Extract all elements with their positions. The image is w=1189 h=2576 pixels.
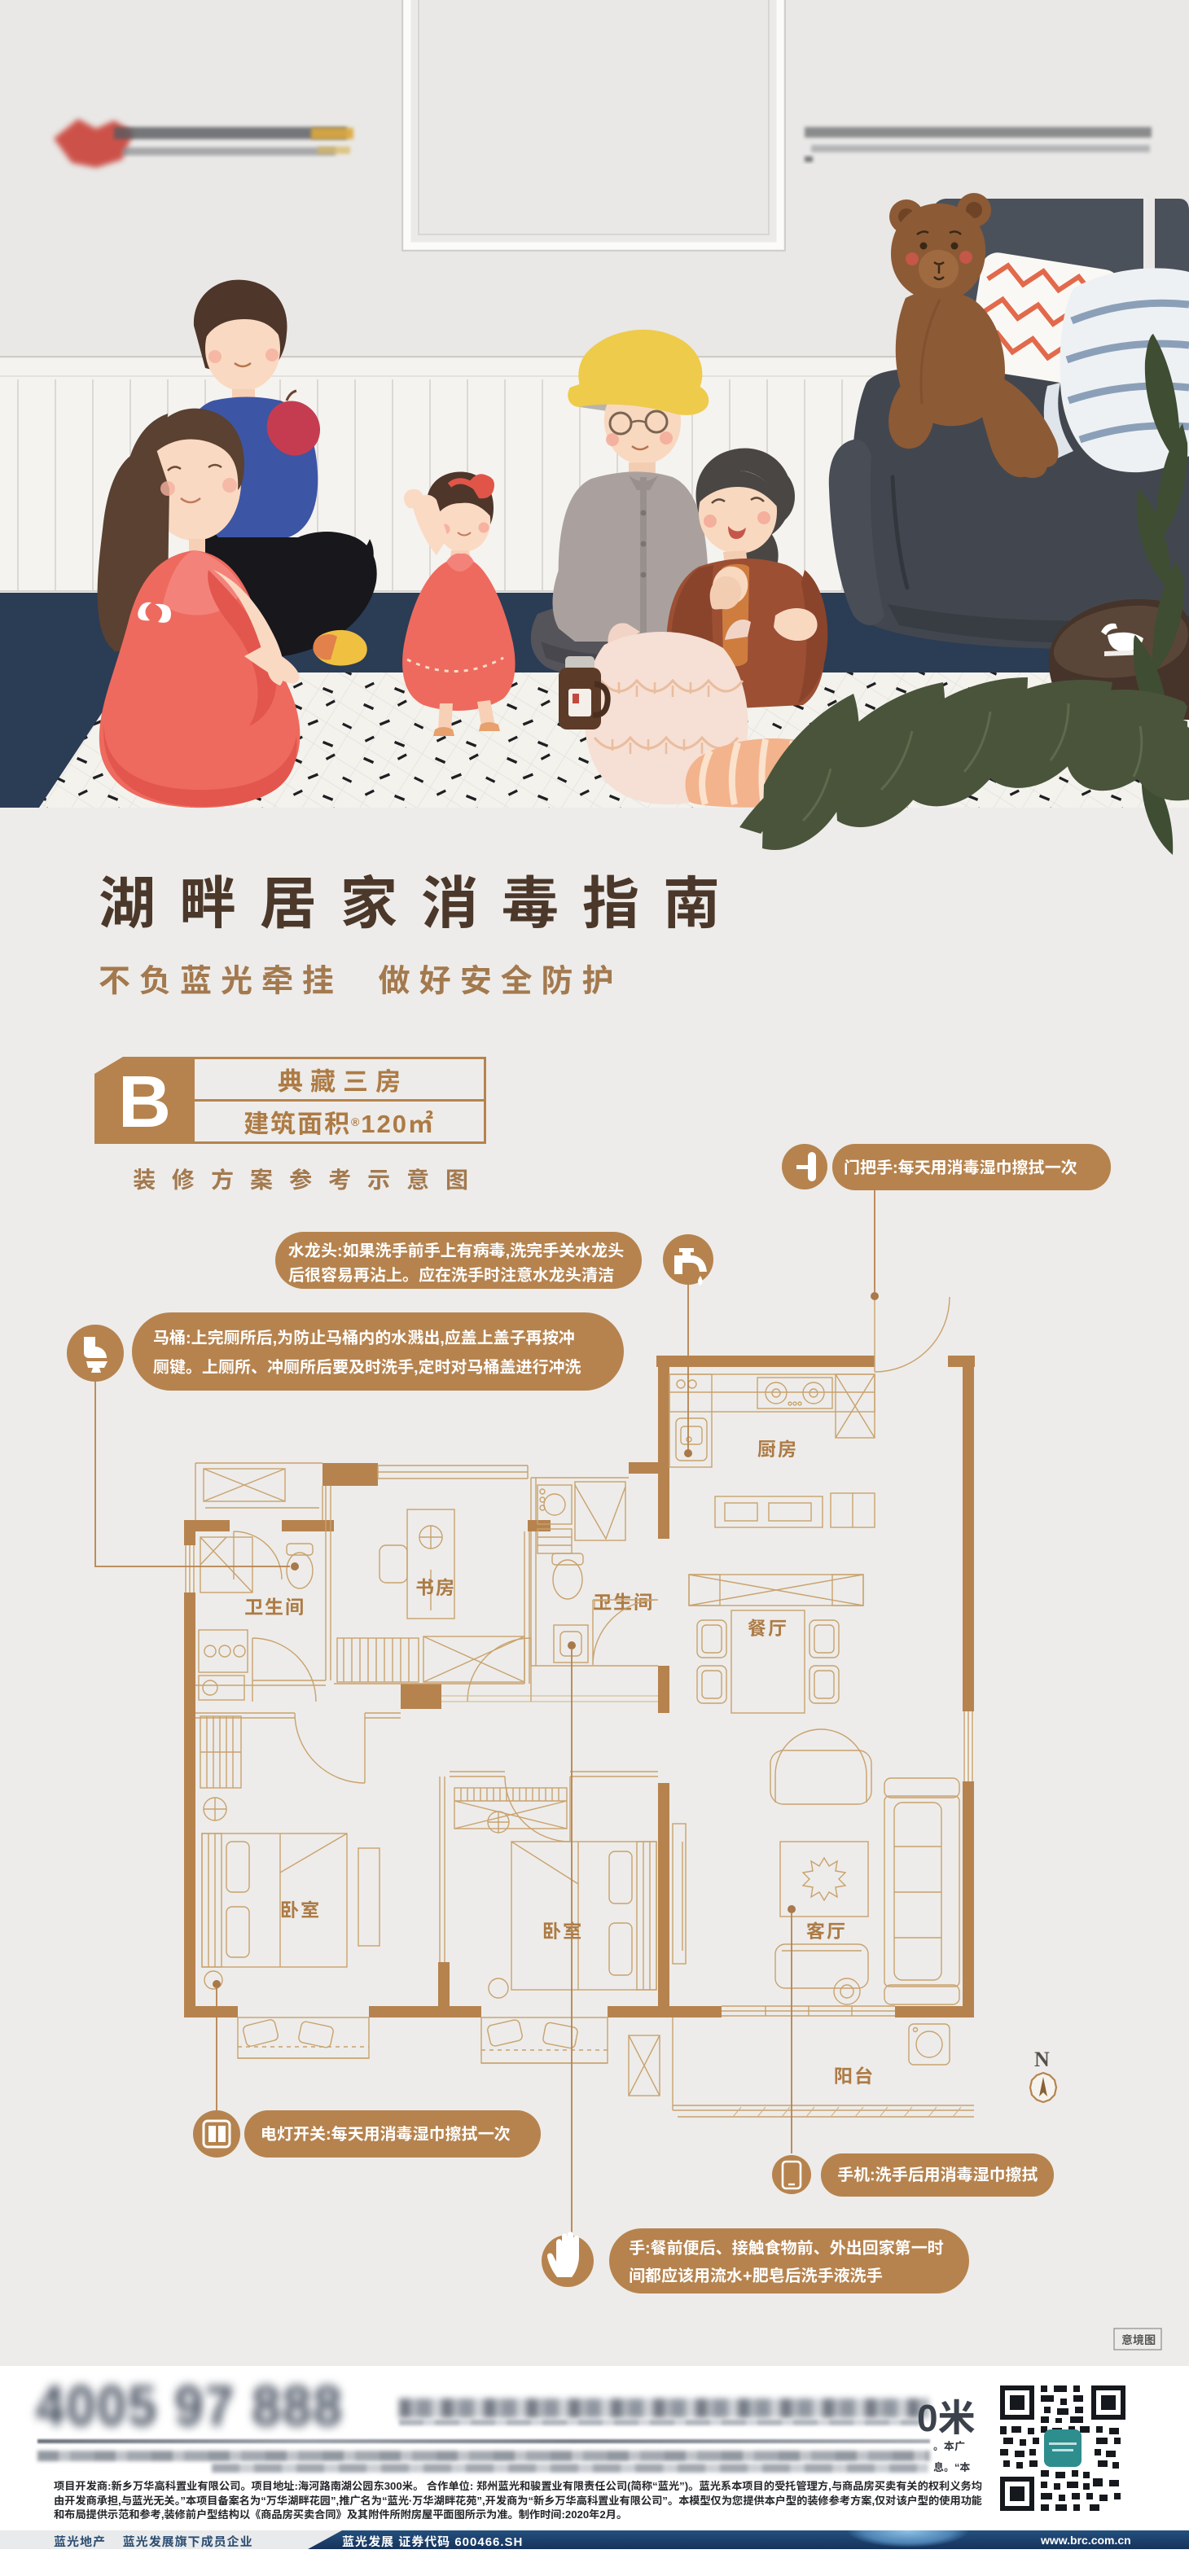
svg-text:卫生间: 卫生间	[244, 1597, 305, 1618]
svg-text:卧室: 卧室	[280, 1899, 321, 1921]
svg-text:N: N	[1034, 2048, 1050, 2071]
svg-text:水龙头:如果洗手前手上有病毒,洗完手关水龙头: 水龙头:如果洗手前手上有病毒,洗完手关水龙头	[288, 1242, 624, 1260]
svg-text:马桶:上完厕所后,为防止马桶内的水溅出,应盖上盖子再按冲: 马桶:上完厕所后,为防止马桶内的水溅出,应盖上盖子再按冲	[153, 1329, 575, 1347]
svg-text:客厅: 客厅	[806, 1921, 847, 1942]
svg-text:书房: 书房	[415, 1577, 456, 1598]
svg-text:手:餐前便后、接触食物前、外出回家第一时: 手:餐前便后、接触食物前、外出回家第一时	[629, 2239, 944, 2258]
svg-text:门把手:每天用消毒湿巾擦拭一次: 门把手:每天用消毒湿巾擦拭一次	[844, 1159, 1077, 1177]
svg-text:阳台: 阳台	[834, 2066, 875, 2087]
svg-text:手机:洗手后用消毒湿巾擦拭: 手机:洗手后用消毒湿巾擦拭	[837, 2166, 1038, 2184]
svg-text:意境图: 意境图	[1121, 2333, 1156, 2346]
svg-text:餐厅: 餐厅	[748, 1618, 788, 1639]
svg-text:厨房: 厨房	[757, 1439, 798, 1460]
svg-text:电灯开关:每天用消毒湿巾擦拭一次: 电灯开关:每天用消毒湿巾擦拭一次	[261, 2125, 511, 2144]
svg-text:卧室: 卧室	[542, 1921, 583, 1942]
svg-text:厕键。上厕所、冲厕所后要及时洗手,定时对马桶盖进行冲洗: 厕键。上厕所、冲厕所后要及时洗手,定时对马桶盖进行冲洗	[153, 1358, 582, 1377]
svg-text:后很容易再沾上。应在洗手时注意水龙头清洁: 后很容易再沾上。应在洗手时注意水龙头清洁	[288, 1266, 614, 1285]
svg-text:间都应该用流水+肥皂后洗手液洗手: 间都应该用流水+肥皂后洗手液洗手	[629, 2267, 883, 2285]
